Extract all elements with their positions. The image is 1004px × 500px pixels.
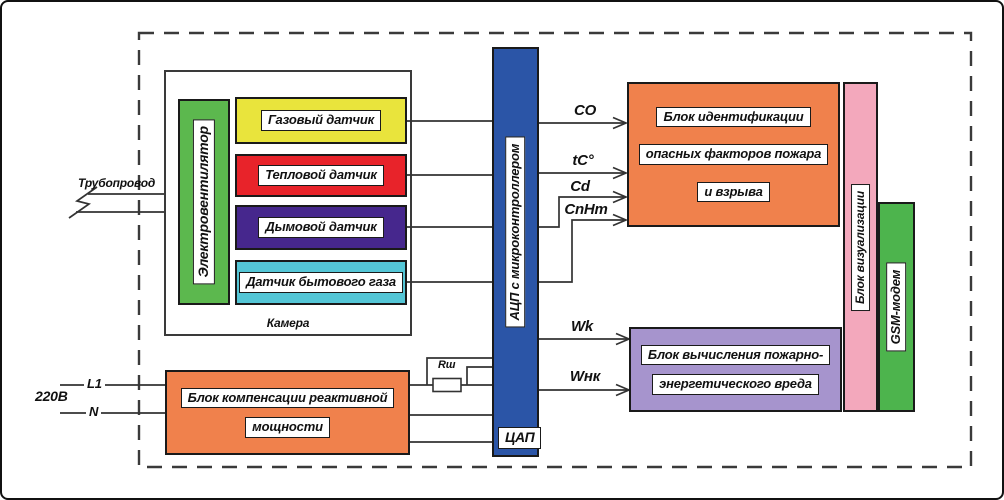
identification-line1: Блок идентификации bbox=[656, 107, 810, 127]
adc-label: АЦП с микроконтроллером bbox=[505, 137, 525, 328]
compensation-line2: мощности bbox=[245, 417, 330, 437]
dac-label: ЦАП bbox=[498, 427, 541, 449]
block-diagram: Камера bbox=[0, 0, 1004, 500]
household-gas-sensor-label: Датчик бытового газа bbox=[239, 272, 403, 292]
identification-block: Блок идентификации опасных факторов пожа… bbox=[627, 82, 840, 227]
signal-wk: Wk bbox=[571, 318, 593, 335]
compensation-block: Блок компенсации реактивной мощности bbox=[165, 370, 410, 455]
smoke-sensor-label: Дымовой датчик bbox=[258, 217, 383, 237]
signal-wnk: Wнк bbox=[570, 368, 600, 385]
shunt-resistor-symbol bbox=[433, 379, 461, 392]
voltage-label: 220В bbox=[35, 388, 68, 404]
signal-co: CO bbox=[574, 102, 596, 119]
identification-line3: и взрыва bbox=[697, 182, 769, 202]
adc-block: АЦП с микроконтроллером bbox=[492, 47, 539, 457]
gas-sensor-block: Газовый датчик bbox=[235, 97, 407, 144]
fan-block: Электровентилятор bbox=[178, 99, 230, 305]
calculation-line2: энергетического вреда bbox=[652, 374, 819, 394]
heat-sensor-label: Тепловой датчик bbox=[258, 165, 383, 185]
neutral-label: N bbox=[86, 404, 101, 419]
fan-label: Электровентилятор bbox=[193, 119, 215, 284]
gas-sensor-label: Газовый датчик bbox=[261, 110, 381, 130]
visualization-label: Блок визуализации bbox=[851, 183, 870, 310]
camera-label: Камера bbox=[267, 316, 309, 330]
identification-line2: опасных факторов пожара bbox=[639, 144, 828, 164]
calculation-block: Блок вычисления пожарно- энергетического… bbox=[629, 327, 842, 412]
gsm-modem-block: GSM-модем bbox=[878, 202, 915, 412]
gsm-modem-label: GSM-модем bbox=[886, 263, 906, 352]
signal-cnhm: CnHm bbox=[564, 201, 607, 218]
signal-temp: tC° bbox=[572, 152, 593, 169]
heat-sensor-block: Тепловой датчик bbox=[235, 154, 407, 197]
signal-cd: Cd bbox=[570, 178, 590, 195]
visualization-block: Блок визуализации bbox=[843, 82, 878, 412]
pipe-break-symbol bbox=[69, 187, 97, 218]
smoke-sensor-block: Дымовой датчик bbox=[235, 205, 407, 250]
calculation-line1: Блок вычисления пожарно- bbox=[641, 345, 830, 365]
shunt-label: Rш bbox=[438, 359, 455, 371]
household-gas-sensor-block: Датчик бытового газа bbox=[235, 260, 407, 305]
pipeline-label: Трубопровод bbox=[78, 176, 155, 190]
compensation-line1: Блок компенсации реактивной bbox=[181, 388, 395, 408]
phase-l1-label: L1 bbox=[84, 376, 105, 391]
